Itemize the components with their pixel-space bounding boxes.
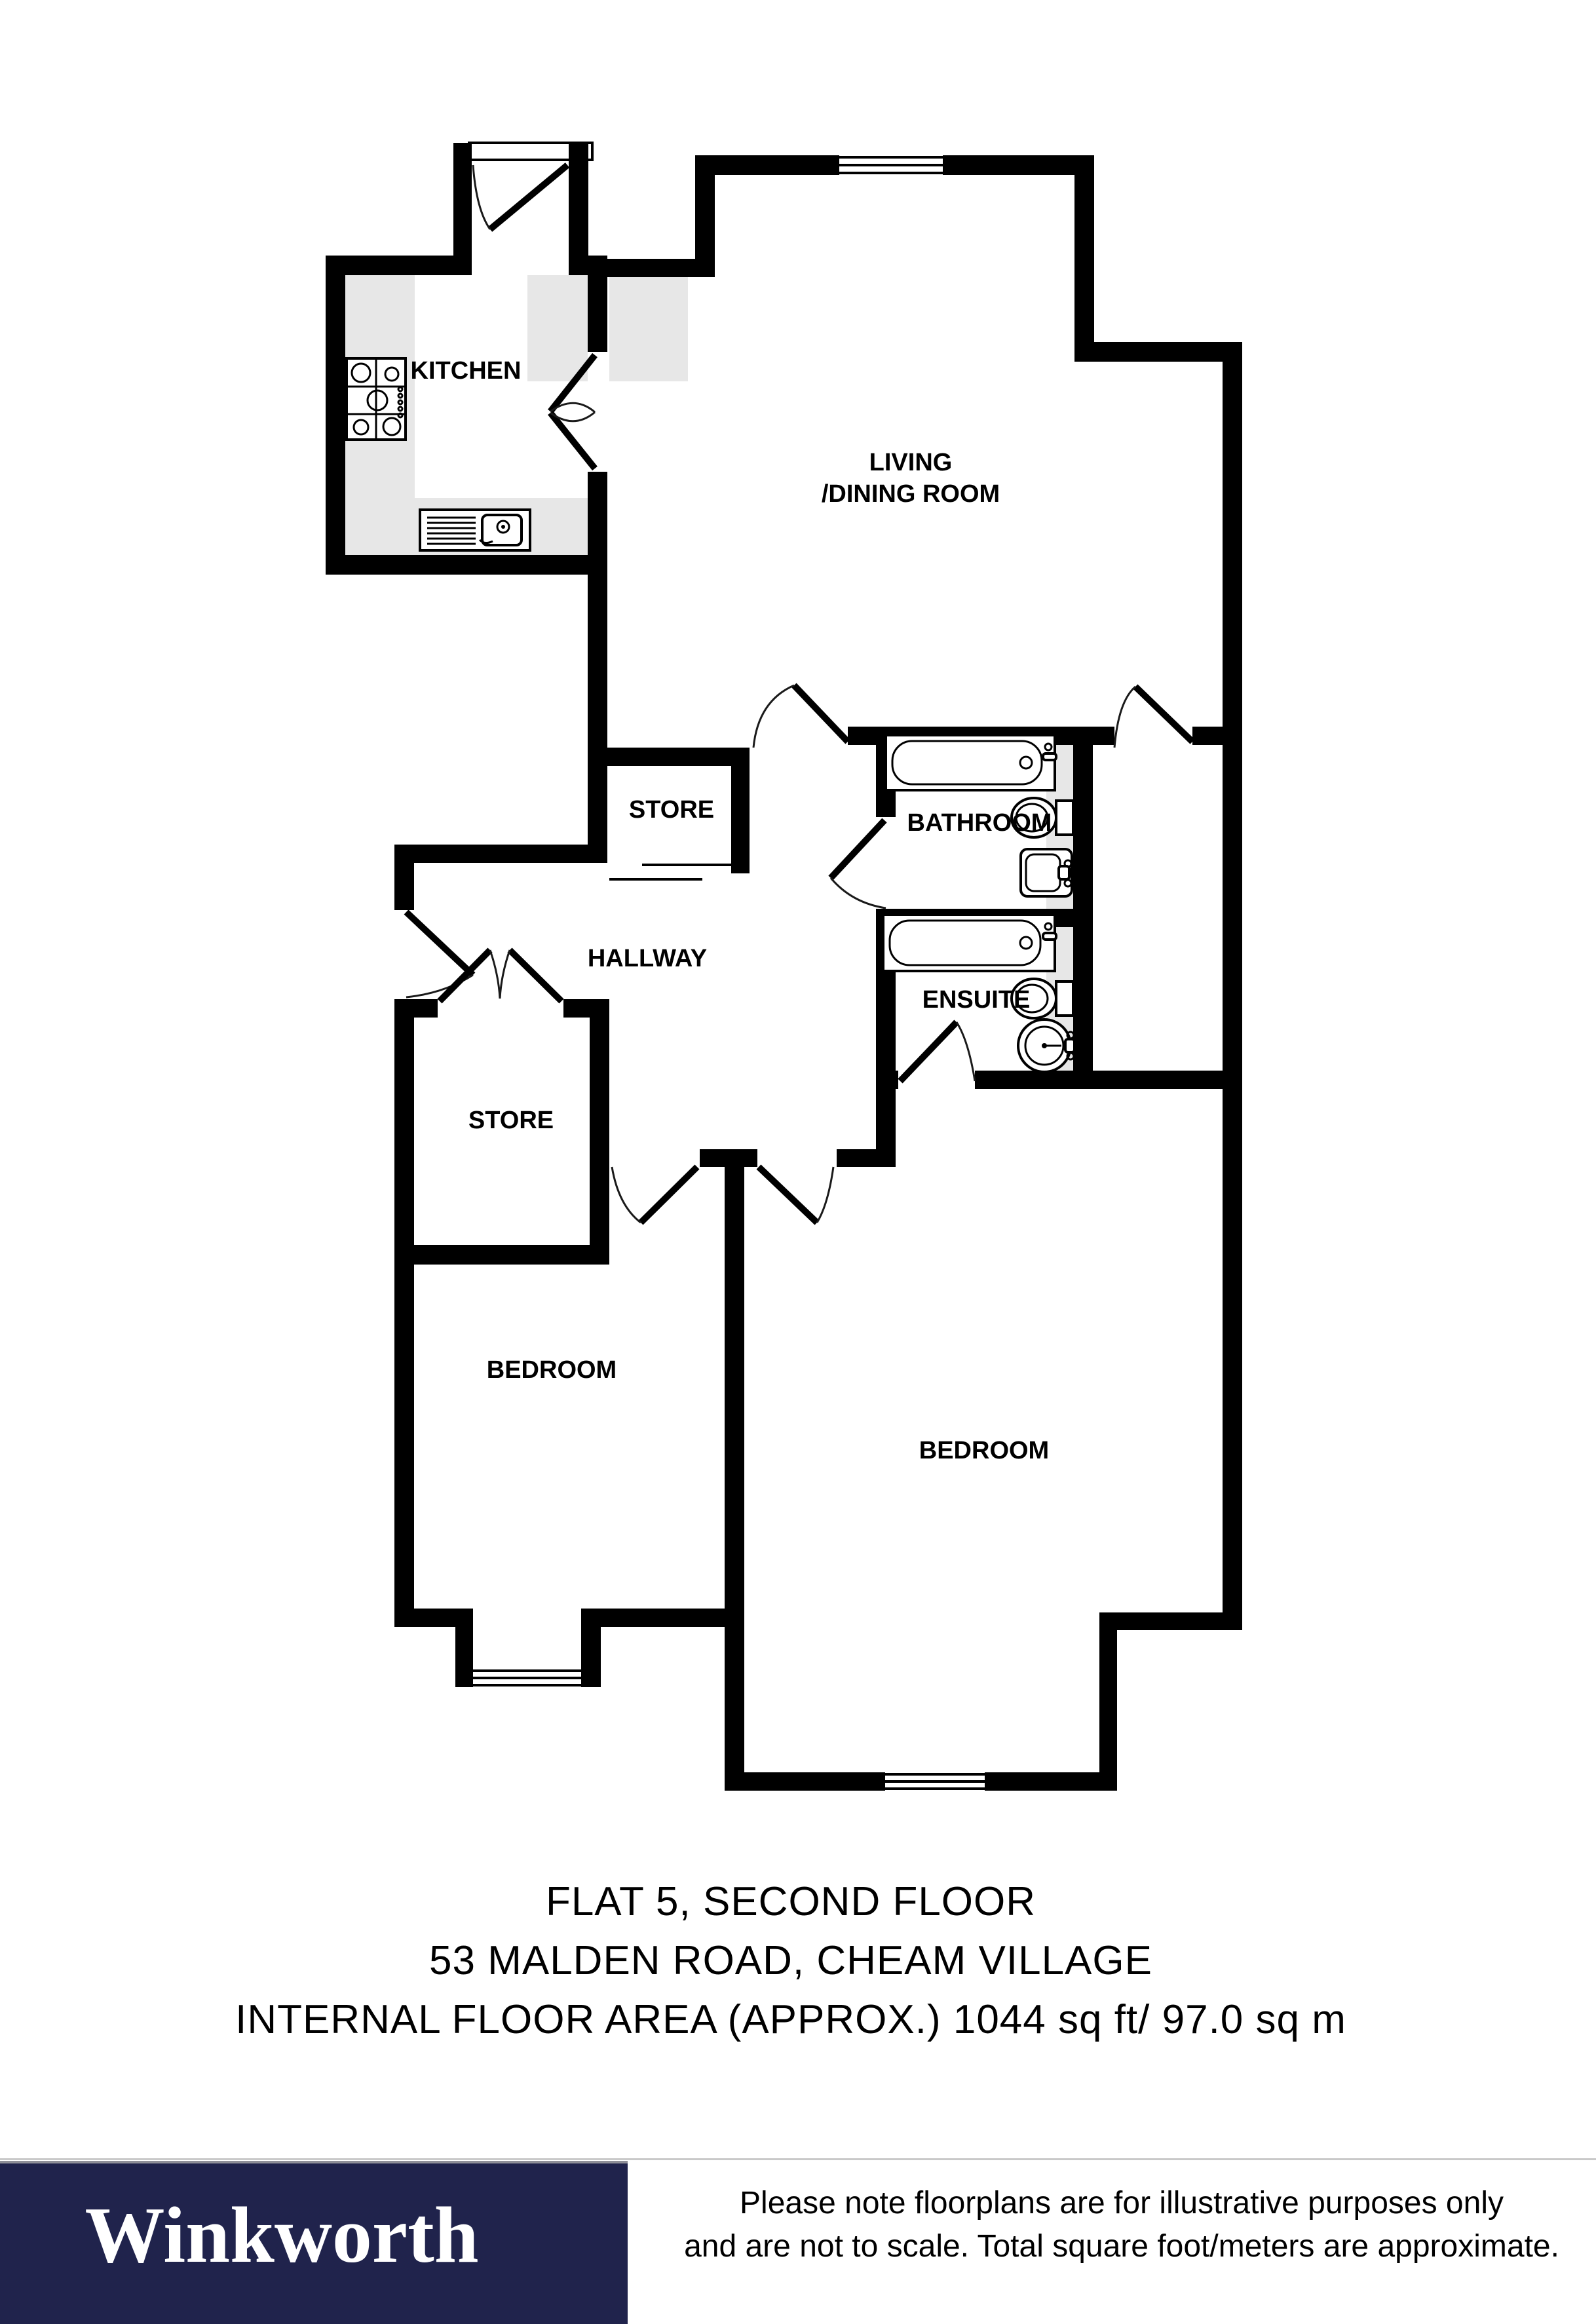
wall-segment <box>394 845 414 910</box>
store-top-label: STORE <box>629 796 714 824</box>
wall-segment <box>725 1149 744 1791</box>
living-dining-label-line1: LIVING <box>869 449 953 476</box>
wall-segment <box>590 999 609 1265</box>
wall-segment <box>453 143 472 275</box>
wall-segment <box>876 1071 898 1089</box>
brand-banner: Winkworth <box>0 2161 628 2324</box>
disclaimer-line2: and are not to scale. Total square foot/… <box>655 2225 1588 2268</box>
living-room-window <box>839 157 943 173</box>
wall-segment <box>1074 342 1242 362</box>
bedroom-left-bay-window <box>473 1671 581 1685</box>
bath-icon <box>883 915 1056 971</box>
wall-segment <box>731 748 750 873</box>
living-unit <box>609 263 688 381</box>
caption-address-line: 53 MALDEN ROAD, CHEAM VILLAGE <box>0 1932 1582 1991</box>
wall-segment <box>455 1609 473 1687</box>
bathroom-door <box>831 820 886 908</box>
wall-segment <box>394 1245 609 1265</box>
wall-segment <box>326 555 607 575</box>
plan-caption: FLAT 5, SECOND FLOOR 53 MALDEN ROAD, CHE… <box>0 1873 1582 2049</box>
footer-disclaimer: Please note floorplans are for illustrat… <box>655 2182 1588 2268</box>
living-dining-label-line2: /DINING ROOM <box>822 480 1000 508</box>
wall-segment <box>1223 342 1242 1630</box>
entrance-porch-door <box>473 165 567 229</box>
wall-segment <box>326 256 345 575</box>
hob-icon <box>347 358 406 440</box>
wall-segment <box>394 999 414 1265</box>
disclaimer-line1: Please note floorplans are for illustrat… <box>655 2182 1588 2225</box>
counter-right <box>527 275 588 381</box>
ensuite-label: ENSUITE <box>922 986 1031 1014</box>
bedroom-right-window <box>885 1774 985 1789</box>
wall-segment <box>1073 727 1093 1089</box>
sink-icon <box>1021 849 1072 896</box>
wall-segment <box>985 1772 1117 1791</box>
kitchen-sink-icon <box>420 510 530 550</box>
ensuite-door <box>900 1022 975 1081</box>
store-bottom-label: STORE <box>468 1107 554 1134</box>
bedroom-left-door <box>612 1167 697 1223</box>
bathroom-label: BATHROOM <box>907 809 1052 837</box>
wall-segment <box>837 1149 876 1167</box>
wall-segment <box>394 1265 414 1627</box>
wall-segment <box>695 155 839 175</box>
wall-segment <box>326 256 472 275</box>
caption-area-line: INTERNAL FLOOR AREA (APPROX.) 1044 sq ft… <box>0 1991 1582 2049</box>
bath-icon <box>886 735 1056 790</box>
brand-logo: Winkworth <box>0 2190 563 2281</box>
wall-segment <box>725 1772 885 1791</box>
living-inner-room-door <box>1114 687 1192 748</box>
wall-segment <box>975 1071 1223 1089</box>
wall-segment <box>569 143 588 275</box>
wall-segment <box>581 1609 744 1627</box>
bedroom-right-door <box>759 1167 833 1223</box>
wall-segment <box>943 155 1094 175</box>
bedroom-right-label: BEDROOM <box>919 1437 1049 1464</box>
store-threshold-lines <box>609 865 734 879</box>
floorplan-page: { "page": { "background": "#ffffff" }, "… <box>0 0 1596 2321</box>
wall-segment <box>588 472 607 863</box>
bedroom-left-label: BEDROOM <box>487 1356 617 1384</box>
wall-segment <box>394 845 607 863</box>
caption-flat-line: FLAT 5, SECOND FLOOR <box>0 1873 1582 1932</box>
hallway-living-door <box>753 685 848 748</box>
wall-segment <box>1074 155 1094 362</box>
kitchen-label: KITCHEN <box>411 357 522 385</box>
wall-segment <box>607 748 750 766</box>
hallway-label: HALLWAY <box>588 945 707 972</box>
footer-divider <box>0 2158 1596 2160</box>
wall-segment <box>1099 1612 1242 1630</box>
wall-segment <box>700 1149 757 1167</box>
wall-segment <box>1192 727 1223 745</box>
flat-entrance-door <box>406 912 473 997</box>
wall-segment <box>1099 1612 1117 1791</box>
